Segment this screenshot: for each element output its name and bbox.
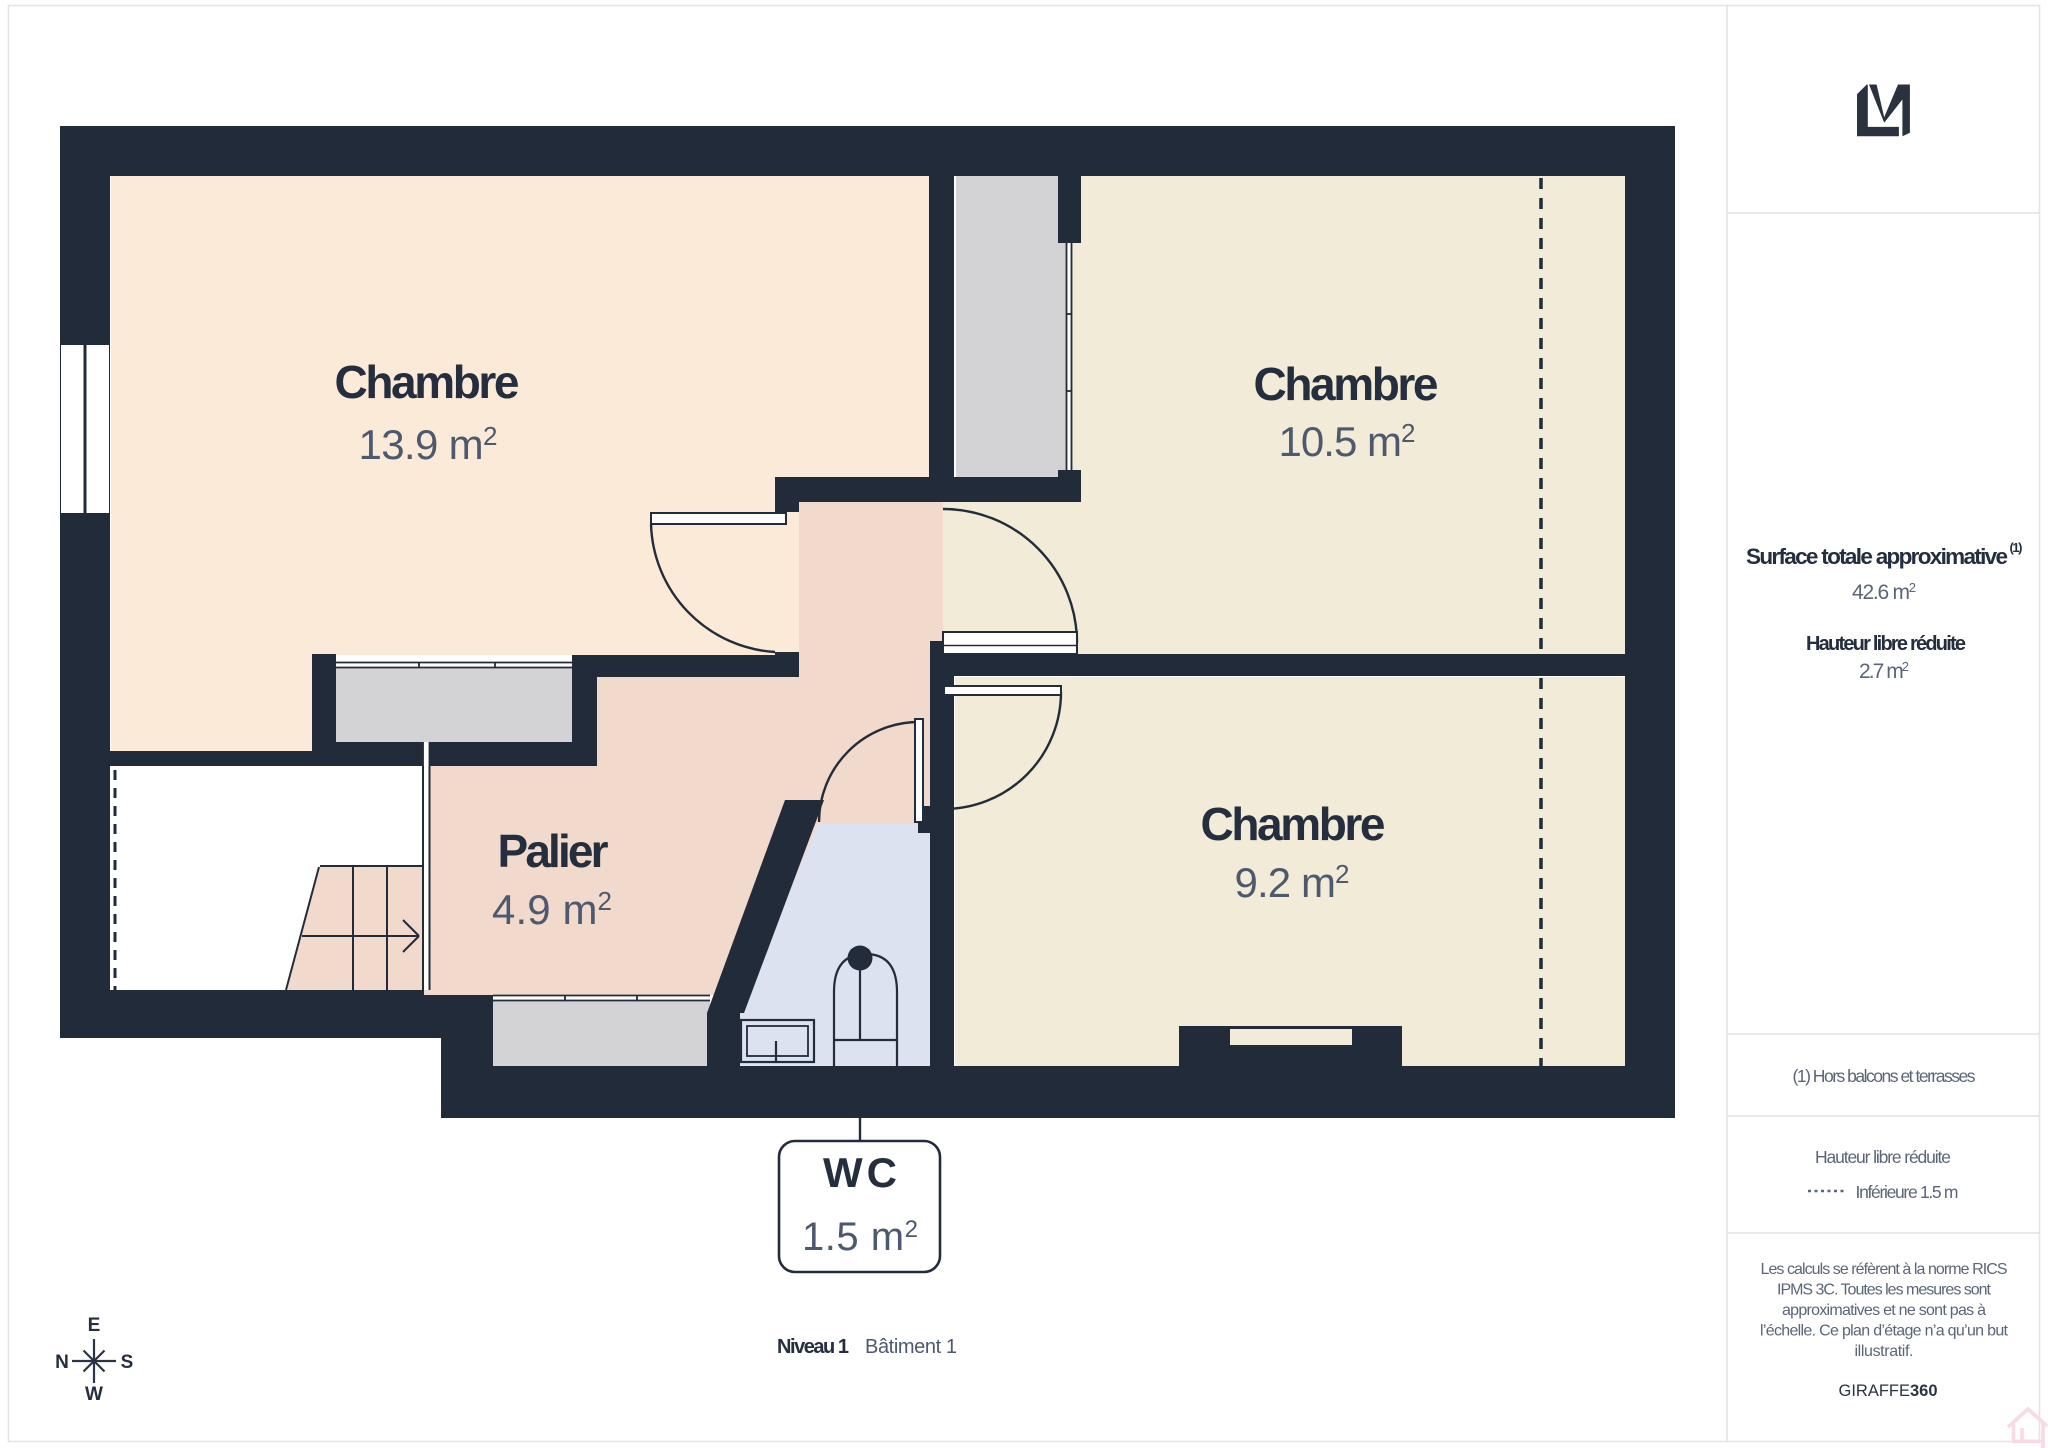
svg-text:IPMS 3C. Toutes les mesures so: IPMS 3C. Toutes les mesures sont [1777,1282,1992,1299]
svg-text:S: S [121,1352,134,1373]
svg-text:(1): (1) [2010,540,2023,555]
svg-text:(1) Hors balcons et terrasses: (1) Hors balcons et terrasses [1793,1066,1976,1086]
svg-text:illustratif.: illustratif. [1855,1343,1914,1360]
svg-text:Palier: Palier [498,825,609,877]
svg-text:Surface totale approximative: Surface totale approximative [1746,544,2008,569]
svg-text:W: W [85,1384,103,1405]
svg-text:approximatives et ne sont pas: approximatives et ne sont pas à [1782,1302,1986,1319]
svg-text:Hauteur libre réduite: Hauteur libre réduite [1806,633,1966,655]
svg-text:N: N [55,1352,69,1373]
svg-text:Inférieure 1.5 m: Inférieure 1.5 m [1856,1182,1959,1202]
svg-text:WC: WC [823,1149,897,1196]
svg-text:13.9 m2: 13.9 m2 [359,421,498,468]
svg-text:Chambre: Chambre [1254,358,1439,410]
svg-text:Bâtiment 1: Bâtiment 1 [865,1336,957,1358]
svg-text:42.6 m2: 42.6 m2 [1852,580,1916,604]
svg-text:9.2 m2: 9.2 m2 [1235,859,1350,906]
svg-text:Niveau 1: Niveau 1 [777,1336,849,1358]
svg-text:GIRAFFE360: GIRAFFE360 [1839,1382,1938,1400]
svg-text:10.5 m2: 10.5 m2 [1279,418,1416,465]
svg-text:Hauteur libre réduite: Hauteur libre réduite [1815,1147,1951,1167]
svg-text:2.7 m2: 2.7 m2 [1859,659,1909,683]
svg-text:Les calculs se réfèrent à la n: Les calculs se réfèrent à la norme RICS [1761,1261,2008,1278]
svg-text:E: E [88,1315,101,1336]
svg-text:Chambre: Chambre [335,356,520,408]
svg-text:Chambre: Chambre [1201,798,1386,850]
svg-text:4.9 m2: 4.9 m2 [492,886,612,933]
svg-text:1.5 m2: 1.5 m2 [802,1215,918,1259]
svg-text:l’échelle. Ce plan d’étage n’a: l’échelle. Ce plan d’étage n’a qu’un but [1760,1323,2009,1340]
